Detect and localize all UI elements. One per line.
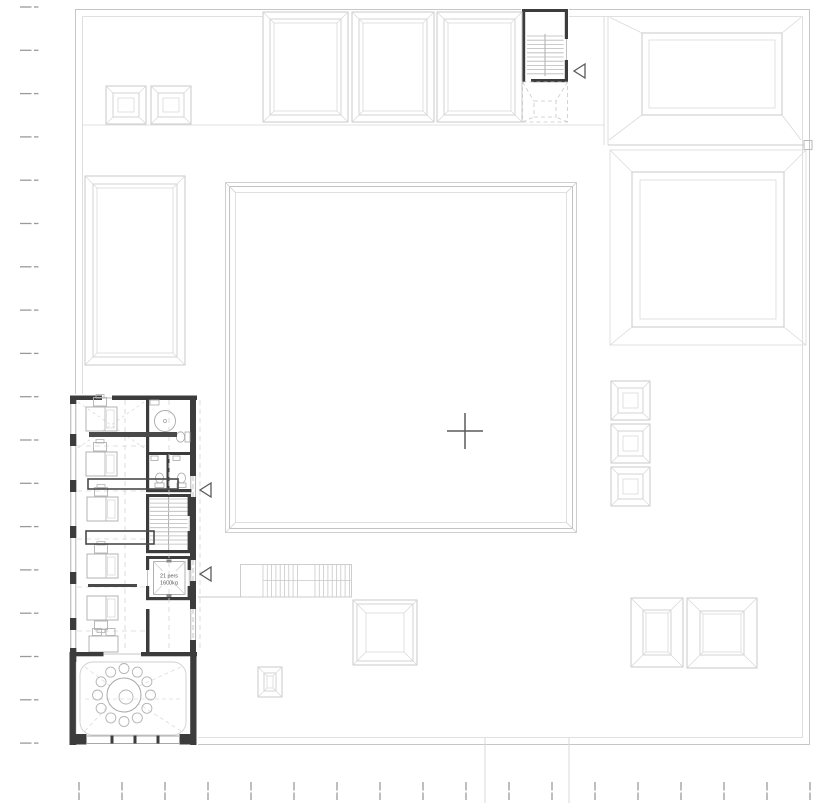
skylight-right-upper [609, 18, 801, 141]
courtyard-skylight [226, 183, 577, 533]
floor-plan-drawing: 21 pers 1600kg [0, 0, 818, 805]
floor-plan-canvas: 21 pers 1600kg [0, 0, 818, 805]
corridor-wall [146, 609, 150, 653]
plan-markers [200, 64, 585, 581]
direction-triangle-icon [200, 483, 211, 497]
ridge-end-cap [804, 141, 812, 150]
office-wing: 21 pers 1600kg [69, 394, 200, 746]
skylight-right-lower [610, 150, 806, 345]
direction-triangle-icon [574, 64, 585, 78]
direction-triangle-icon [200, 567, 211, 581]
external-stair [197, 565, 352, 598]
stair-shaft-dashed-outline [523, 82, 568, 122]
stairwell-top [521, 7, 569, 122]
walkway-lines [485, 738, 569, 803]
